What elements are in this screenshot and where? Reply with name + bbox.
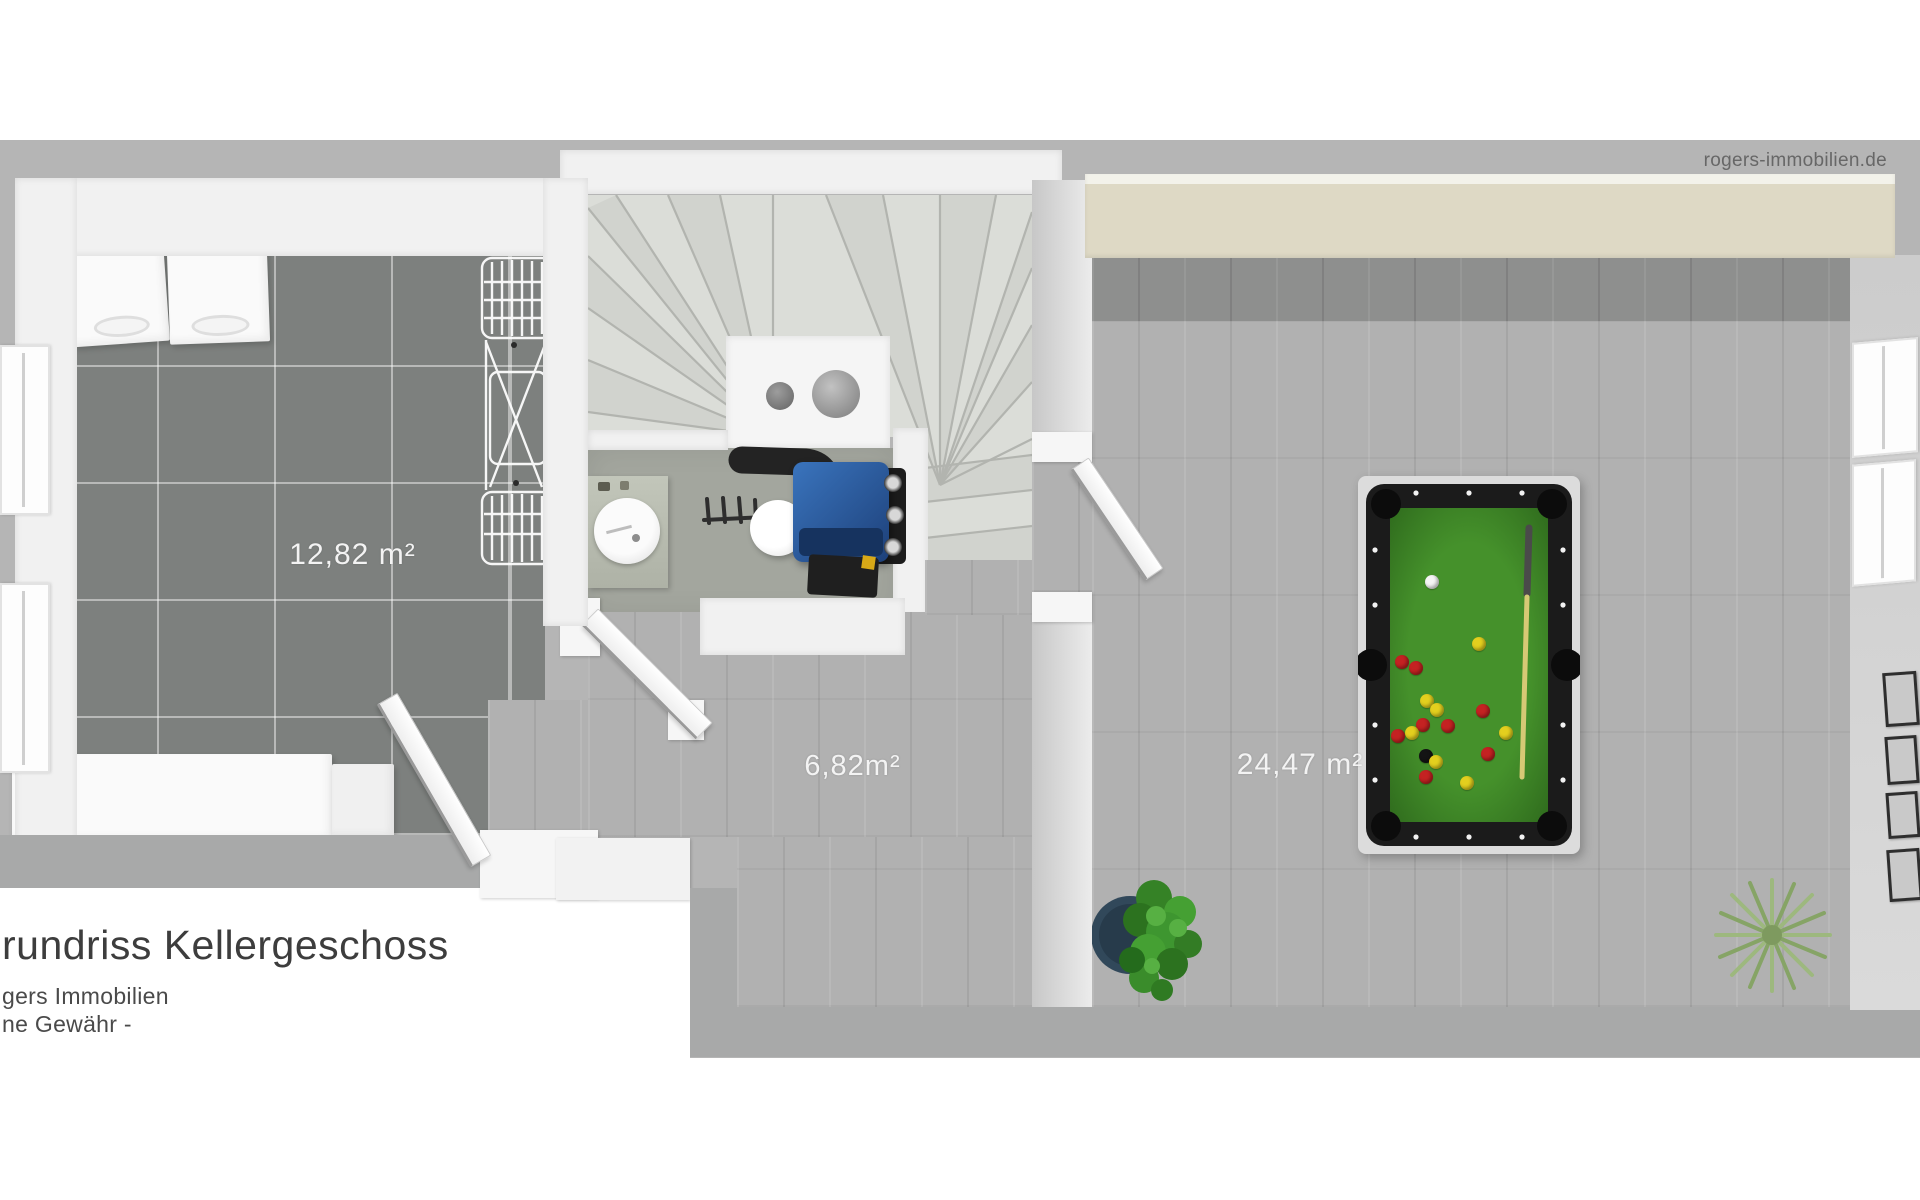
hobby-window-upper xyxy=(1852,337,1918,458)
pool-pockets-and-sights xyxy=(1358,476,1580,854)
heating-boiler xyxy=(793,462,889,562)
round-basin xyxy=(594,498,660,564)
page-title: rundriss Kellergeschoss xyxy=(2,922,449,969)
flue-hole-small xyxy=(766,382,794,410)
laundry-door-threshold-2 xyxy=(556,838,690,900)
stair-top-wall xyxy=(560,150,1062,194)
laundry-east-wall xyxy=(543,178,588,626)
boiler-knob-2 xyxy=(886,506,904,524)
wall-picture-3 xyxy=(1885,791,1920,839)
leafy-potted-plant xyxy=(1092,868,1222,1008)
counter-item xyxy=(620,481,629,490)
hobby-window-lower xyxy=(1852,459,1916,587)
stair-landing-floor xyxy=(925,560,1032,615)
basin-handle xyxy=(606,525,632,534)
hobby-door-jamb-upper xyxy=(1032,432,1092,462)
hobby-door-jamb-lower xyxy=(1032,592,1092,622)
boiler-panel xyxy=(799,528,883,556)
washer-door-icon xyxy=(93,314,150,339)
boiler-room-south-wall xyxy=(700,598,905,655)
window-frame-line xyxy=(1881,468,1884,578)
hallway-west-outer-wall xyxy=(690,888,737,1008)
boiler-knob-1 xyxy=(884,474,902,492)
basin-drain xyxy=(632,534,640,542)
floor-plan: 12,82 m² 6,82m² 24,47 m² rogers-immobili… xyxy=(0,0,1920,1200)
wall-picture-1 xyxy=(1882,671,1920,727)
window-frame-line xyxy=(1882,346,1885,449)
hobby-area-label: 24,47 m² xyxy=(1190,748,1410,782)
window-frame-line xyxy=(22,591,25,765)
wall-picture-4 xyxy=(1886,848,1920,902)
spiky-potted-plant xyxy=(1712,875,1832,995)
storage-chest-small xyxy=(332,764,394,838)
boiler-knob-3 xyxy=(884,538,902,556)
faucet-icon xyxy=(598,482,610,491)
pool-table xyxy=(1358,476,1580,854)
hallway-floor-west-strip xyxy=(488,700,588,837)
hallway-floor-lower xyxy=(737,837,1032,1007)
wall-picture-2 xyxy=(1884,735,1919,785)
footer-company-line: gers Immobilien xyxy=(2,983,169,1010)
laundry-window-lower xyxy=(0,583,50,773)
flue-hole-large xyxy=(812,370,860,418)
utility-counter xyxy=(588,476,668,588)
hobby-top-wall xyxy=(1085,174,1895,258)
laundry-window-upper xyxy=(0,345,50,515)
watermark-url: rogers-immobilien.de xyxy=(1650,150,1887,172)
hallway-area-label: 6,82m² xyxy=(770,750,935,783)
south-outer-wall xyxy=(690,1007,1920,1057)
footer-disclaimer-line: ne Gewähr - xyxy=(2,1011,132,1038)
boiler-yellow-part xyxy=(861,555,876,570)
laundry-bottom-wall xyxy=(0,835,490,888)
window-frame-line xyxy=(22,353,25,507)
laundry-area-label: 12,82 m² xyxy=(240,538,465,572)
laundry-top-wall xyxy=(15,178,585,256)
hobby-floor-shadow-band xyxy=(1092,255,1850,321)
dryer-door-icon xyxy=(191,314,250,337)
